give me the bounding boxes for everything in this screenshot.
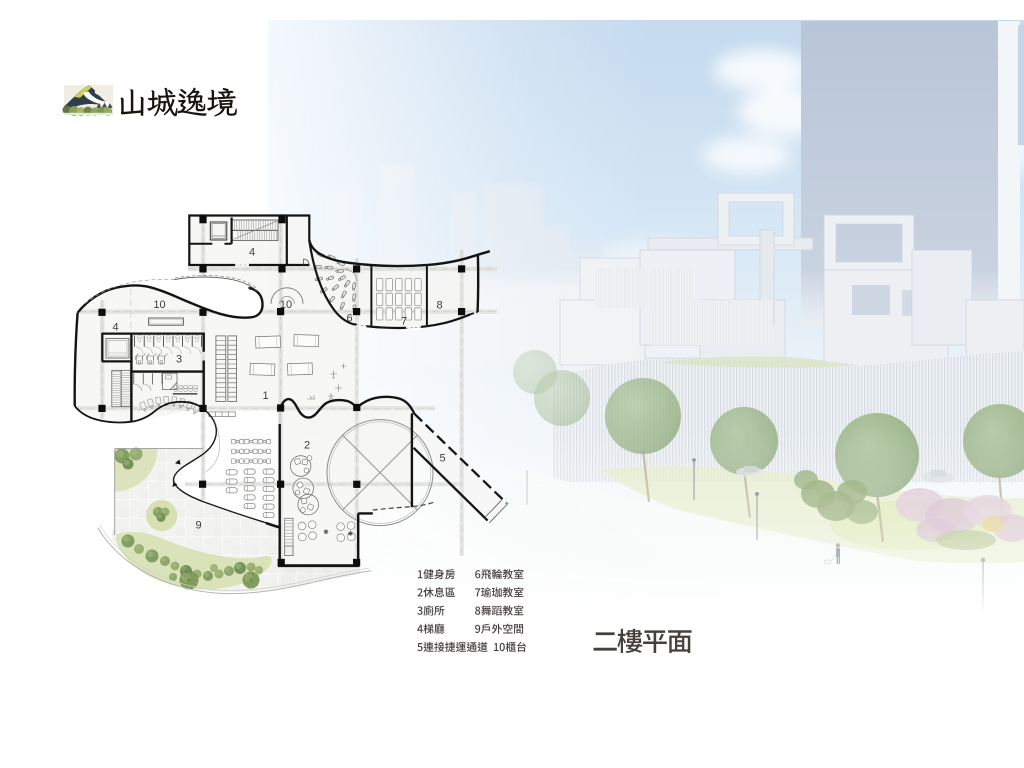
svg-text:10: 10 bbox=[280, 299, 292, 311]
svg-text:10: 10 bbox=[153, 299, 165, 311]
svg-text:7: 7 bbox=[401, 316, 407, 328]
svg-text:3: 3 bbox=[176, 354, 182, 366]
svg-text:8: 8 bbox=[436, 300, 442, 312]
svg-text:1: 1 bbox=[262, 390, 268, 402]
svg-text:9: 9 bbox=[195, 520, 201, 532]
svg-text:4: 4 bbox=[249, 247, 255, 259]
svg-text:2: 2 bbox=[304, 440, 310, 452]
svg-text:4: 4 bbox=[112, 322, 118, 334]
svg-text:6: 6 bbox=[346, 313, 352, 325]
svg-text:5: 5 bbox=[439, 453, 445, 465]
